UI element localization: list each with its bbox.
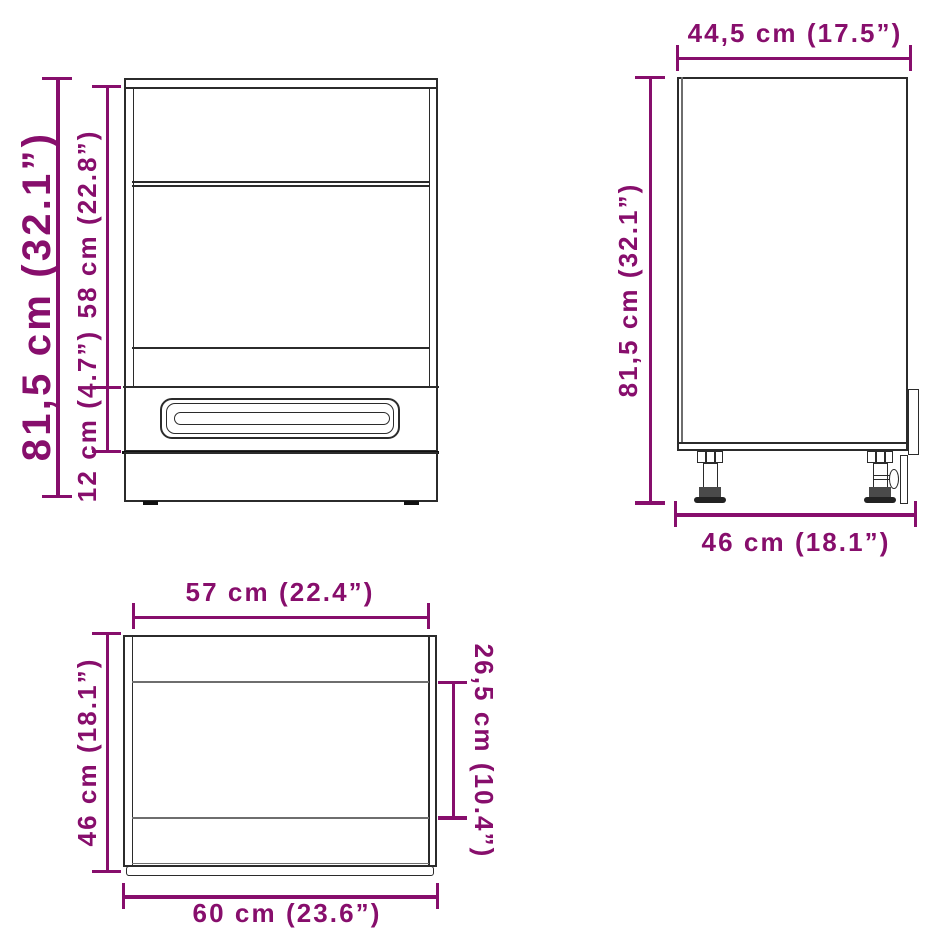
top-inner-width-dim-line bbox=[133, 616, 428, 620]
front-foot-mark-right bbox=[404, 501, 419, 505]
top-inner-width-label: 57 cm (22.4”) bbox=[186, 579, 375, 605]
top-front-depth-dim-line bbox=[452, 682, 456, 818]
top-inner-width-dim-tick-left bbox=[132, 603, 136, 629]
top-inner-width-dim-tick-right bbox=[427, 603, 431, 629]
front-panel-divider-line-b bbox=[132, 185, 429, 187]
top-outer-width-label: 60 cm (23.6”) bbox=[193, 900, 382, 926]
side-height-dim-line bbox=[649, 77, 653, 503]
side-foot-left-notch-a bbox=[705, 451, 707, 463]
side-height-dim-tick-bottom bbox=[635, 501, 665, 505]
top-side-depth-dim-tick-top bbox=[92, 632, 121, 636]
side-bottom-board-line bbox=[677, 442, 908, 444]
top-side-depth-label: 46 cm (18.1”) bbox=[74, 658, 100, 847]
front-inner-dim-tick-top bbox=[92, 85, 121, 89]
side-rear-panel-strip bbox=[900, 455, 908, 504]
side-foot-right-cam-knob bbox=[889, 469, 899, 489]
side-foot-right-cam-line-a bbox=[873, 475, 890, 477]
side-foot-left-base bbox=[694, 497, 726, 503]
top-left-rail-line bbox=[132, 635, 134, 867]
top-outer-width-dim-tick-right bbox=[436, 883, 440, 909]
front-top-band-line bbox=[124, 87, 438, 89]
top-side-depth-dim-tick-bottom bbox=[92, 870, 121, 874]
side-top-depth-dim-tick-left bbox=[676, 45, 680, 71]
top-side-depth-dim-line bbox=[106, 633, 110, 873]
side-top-depth-dim-line bbox=[677, 57, 910, 61]
front-total-height-dim-tick-bottom bbox=[42, 495, 72, 499]
side-foot-right-bracket bbox=[867, 451, 893, 463]
front-foot-mark-left bbox=[143, 501, 158, 505]
top-front-depth-dim-tick-bottom bbox=[438, 816, 467, 820]
top-front-depth-dim-tick-top bbox=[438, 681, 467, 685]
side-door-edge-line bbox=[681, 77, 683, 442]
front-plinth bbox=[124, 452, 438, 502]
front-drawer-handle-slot bbox=[174, 412, 390, 425]
cabinet-dimension-diagram: 81,5 cm (32.1”) 58 cm (22.8”) 12 cm (4.7… bbox=[0, 0, 947, 947]
top-body-outline bbox=[123, 635, 437, 867]
top-back-section-line bbox=[132, 681, 429, 683]
top-right-rail-line bbox=[428, 635, 430, 867]
side-foot-right-cam-line-b bbox=[873, 479, 890, 481]
top-outer-width-dim-tick-left bbox=[122, 883, 126, 909]
top-front-section-line bbox=[132, 817, 429, 819]
side-body-outline bbox=[677, 77, 908, 451]
front-total-height-label: 81,5 cm (32.1”) bbox=[17, 131, 57, 461]
front-cavity-bottom-line bbox=[132, 347, 429, 349]
front-total-height-dim-tick-top bbox=[42, 77, 72, 81]
top-inner-bottom-line bbox=[132, 863, 429, 864]
side-top-depth-label: 44,5 cm (17.5”) bbox=[688, 20, 903, 46]
side-bottom-depth-label: 46 cm (18.1”) bbox=[702, 529, 891, 555]
side-foot-right-knurl bbox=[869, 487, 891, 497]
side-foot-left-notch-b bbox=[714, 451, 716, 463]
side-bottom-depth-dim-tick-right bbox=[914, 501, 918, 527]
top-door-lip bbox=[126, 866, 434, 876]
side-foot-left-stem bbox=[703, 463, 718, 488]
front-left-rail-line bbox=[133, 88, 135, 387]
side-height-dim-tick-top bbox=[635, 76, 665, 80]
side-rear-bracket bbox=[908, 389, 919, 455]
front-panel-divider-line-a bbox=[132, 181, 429, 183]
front-upper-section-label: 58 cm (22.8”) bbox=[74, 130, 100, 319]
side-foot-left-knurl bbox=[699, 487, 721, 497]
side-foot-right-notch-a bbox=[875, 451, 877, 463]
front-right-rail-line bbox=[429, 88, 431, 387]
front-drawer-top-line bbox=[123, 386, 439, 388]
side-bottom-depth-dim-tick-left bbox=[674, 501, 678, 527]
side-foot-left-bracket bbox=[697, 451, 723, 463]
side-bottom-depth-dim-line bbox=[675, 513, 917, 517]
front-drawer-height-label: 12 cm (4.7”) bbox=[74, 330, 100, 502]
front-cabinet-outline bbox=[124, 78, 438, 452]
side-foot-right-base bbox=[864, 497, 896, 503]
side-height-label: 81,5 cm (32.1”) bbox=[615, 183, 641, 398]
top-front-depth-label: 26,5 cm (10.4”) bbox=[471, 644, 497, 859]
front-inner-dim-line bbox=[106, 86, 110, 452]
side-foot-right-notch-b bbox=[884, 451, 886, 463]
side-top-depth-dim-tick-right bbox=[909, 45, 913, 71]
